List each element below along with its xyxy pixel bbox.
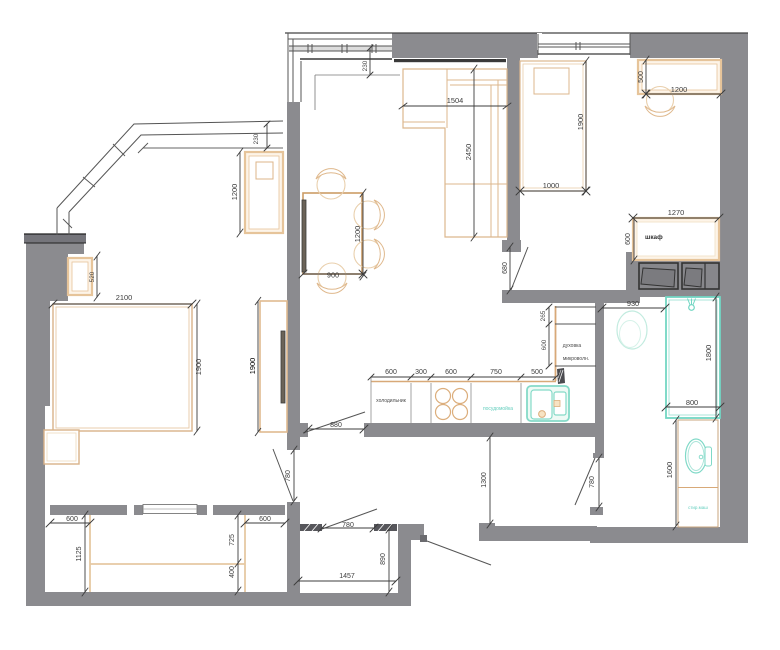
svg-text:265: 265 xyxy=(540,310,547,321)
svg-text:780: 780 xyxy=(589,476,596,488)
svg-text:1200: 1200 xyxy=(671,85,687,94)
svg-text:400: 400 xyxy=(229,566,236,578)
svg-text:1600: 1600 xyxy=(665,462,674,478)
svg-text:600: 600 xyxy=(259,516,271,523)
svg-text:930: 930 xyxy=(627,299,639,308)
svg-text:1200: 1200 xyxy=(230,184,239,200)
svg-text:600: 600 xyxy=(445,369,457,376)
svg-text:1504: 1504 xyxy=(447,96,463,105)
svg-text:1900: 1900 xyxy=(248,358,257,374)
svg-text:680: 680 xyxy=(502,262,509,274)
svg-text:посудомойка: посудомойка xyxy=(483,405,513,412)
svg-text:микроволн.: микроволн. xyxy=(563,356,589,362)
svg-text:230: 230 xyxy=(253,133,260,144)
svg-text:1900: 1900 xyxy=(194,359,203,375)
svg-text:500: 500 xyxy=(638,71,645,83)
svg-text:880: 880 xyxy=(330,422,342,429)
svg-text:1457: 1457 xyxy=(339,573,355,580)
svg-text:230: 230 xyxy=(362,60,369,71)
svg-text:600: 600 xyxy=(625,233,632,245)
svg-text:духовка: духовка xyxy=(563,343,582,349)
svg-text:890: 890 xyxy=(380,553,387,565)
svg-text:1900: 1900 xyxy=(576,114,585,130)
svg-text:стир.маш: стир.маш xyxy=(688,505,708,510)
svg-text:2100: 2100 xyxy=(116,293,132,302)
svg-text:500: 500 xyxy=(531,369,543,376)
svg-text:780: 780 xyxy=(285,470,292,482)
svg-text:600: 600 xyxy=(66,516,78,523)
svg-text:520: 520 xyxy=(89,271,96,282)
svg-text:1270: 1270 xyxy=(668,208,684,217)
svg-text:780: 780 xyxy=(342,522,354,529)
svg-text:1300: 1300 xyxy=(481,472,488,488)
svg-text:1200: 1200 xyxy=(353,226,362,242)
svg-text:725: 725 xyxy=(229,534,236,546)
svg-text:холодильник: холодильник xyxy=(376,398,407,404)
svg-text:1000: 1000 xyxy=(543,181,559,190)
svg-text:800: 800 xyxy=(686,398,698,407)
svg-text:1800: 1800 xyxy=(704,345,713,361)
svg-text:600: 600 xyxy=(385,369,397,376)
svg-text:шкаф: шкаф xyxy=(645,234,663,241)
svg-text:600: 600 xyxy=(541,339,548,350)
svg-text:1125: 1125 xyxy=(76,546,83,561)
svg-text:300: 300 xyxy=(415,369,427,376)
svg-text:750: 750 xyxy=(490,369,502,376)
svg-text:2450: 2450 xyxy=(464,144,473,160)
svg-text:900: 900 xyxy=(327,271,339,280)
